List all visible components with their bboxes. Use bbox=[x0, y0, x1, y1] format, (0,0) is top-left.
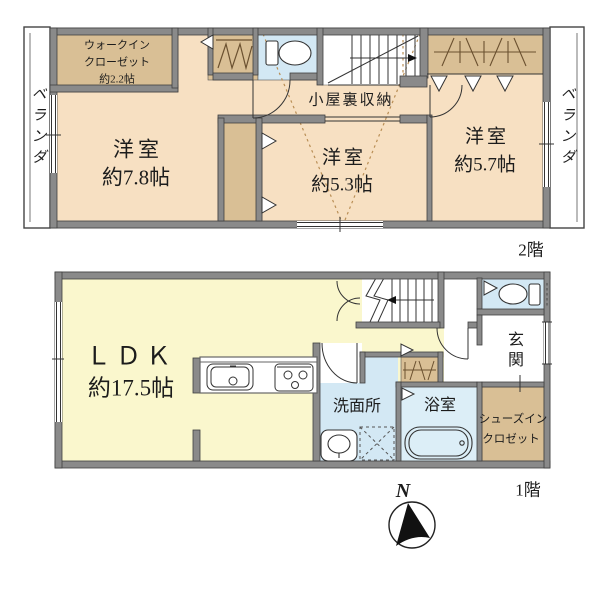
compass-icon bbox=[389, 502, 435, 548]
floorplan-canvas: ウォークイン クローゼット 約2.2帖 洋室 約7.8帖 小屋裏収納 洋室 約5… bbox=[0, 0, 600, 600]
washroom-label: 洗面所 bbox=[333, 399, 381, 415]
bathroom-label: 浴室 bbox=[424, 398, 456, 414]
ldk-name: ＬＤＫ bbox=[86, 345, 176, 370]
room-west-size: 約7.8帖 bbox=[102, 168, 170, 189]
shoe-closet-label-2: クロゼット bbox=[482, 434, 540, 446]
floorplan-drawing bbox=[0, 0, 600, 600]
entrance-label: 玄関 bbox=[505, 331, 521, 371]
room-west-name: 洋室 bbox=[113, 140, 163, 161]
floor1-label: 1階 bbox=[515, 482, 541, 499]
attic-storage-label: 小屋裏収納 bbox=[308, 94, 393, 109]
washroom-pocket bbox=[365, 357, 398, 383]
walkin-closet-label-3: 約2.2帖 bbox=[99, 75, 135, 86]
room-east-name: 洋室 bbox=[465, 128, 509, 147]
shoe-closet-label-1: シューズイン bbox=[479, 414, 547, 426]
walkin-closet-label-2: クローゼット bbox=[84, 58, 150, 69]
compass-north-label: N bbox=[396, 481, 410, 501]
toilet-icon-1f bbox=[499, 284, 540, 305]
washbasin-icon bbox=[321, 430, 357, 461]
room-center-name: 洋室 bbox=[322, 149, 366, 168]
walkin-closet-label-1: ウォークイン bbox=[84, 41, 150, 52]
veranda-right-label: ベランダ bbox=[559, 86, 574, 170]
veranda-left-label: ベランダ bbox=[30, 86, 45, 170]
room-center-size: 約5.3帖 bbox=[311, 176, 373, 195]
toilet-icon-2f bbox=[266, 41, 311, 65]
kitchen-counter bbox=[200, 357, 317, 393]
floor2-label: 2階 bbox=[518, 242, 544, 259]
hanger-closet bbox=[208, 28, 258, 80]
room-east-size: 約5.7帖 bbox=[454, 156, 516, 175]
closet-center bbox=[218, 118, 262, 221]
ldk-size: 約17.5帖 bbox=[88, 377, 174, 400]
